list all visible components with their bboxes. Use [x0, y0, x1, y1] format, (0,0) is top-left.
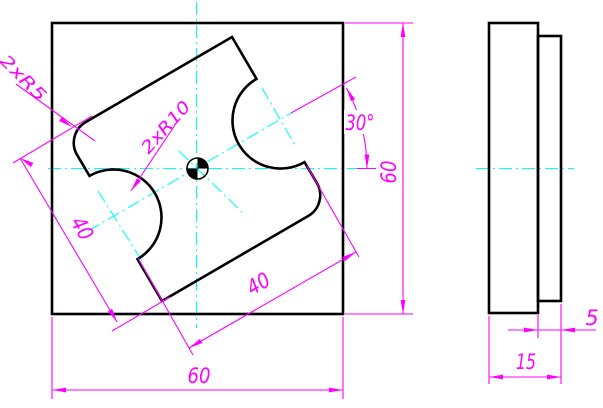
notch-radius-text: 2xR10: [137, 97, 195, 158]
extension-line: [138, 166, 359, 355]
dimension-line: [189, 252, 356, 348]
arrowhead-right: [547, 375, 561, 380]
total-thickness-text: 15: [516, 350, 536, 374]
arrowhead-arc-top: [346, 88, 355, 101]
dim-width-60: 60: [52, 317, 343, 399]
arrowhead-right: [329, 388, 343, 393]
front-view: 60 60 40 40: [0, 2, 413, 399]
slot-angle-text: 30°: [346, 111, 375, 135]
cad-canvas: 60 60 40 40: [0, 0, 603, 408]
dim-slot-length-40: 40: [138, 166, 359, 355]
center-mark-sw-quadrant: [187, 169, 198, 180]
arrowhead-nw: [20, 158, 33, 167]
arrowhead-left: [52, 388, 66, 393]
arrowhead-down: [401, 300, 406, 314]
arrowhead-in-right: [524, 328, 538, 333]
arrowhead-leader-r10: [131, 178, 141, 191]
slot-width-text: 40: [66, 213, 98, 245]
extension-line: [538, 304, 561, 384]
arrowhead-arc-bottom: [365, 155, 370, 169]
diagonal-centerline: [179, 151, 243, 213]
height-dim-text: 60: [377, 161, 401, 184]
arrowhead-left: [489, 375, 503, 380]
arrowhead-up: [401, 23, 406, 37]
arrowhead-leader-r5: [59, 117, 72, 127]
slot-length-text: 40: [243, 268, 275, 300]
arrowhead-se: [108, 309, 117, 322]
upper-notch-centerline: [262, 88, 296, 147]
boss-thickness-text: 5: [585, 306, 598, 330]
dim-angle-30: 30°: [291, 77, 376, 169]
dim-total-thickness-15: 15: [489, 316, 561, 384]
arrowhead-sw: [189, 339, 202, 348]
lower-notch-centerline: [98, 191, 142, 261]
center-mark-ne-quadrant: [198, 158, 209, 169]
center-mark: [187, 158, 208, 179]
cad-drawing-sheet: 60 60 40 40: [0, 0, 603, 408]
dimension-line: [20, 158, 117, 322]
leader-notch-radius: 2xR10: [131, 97, 195, 191]
width-dim-text: 60: [188, 364, 211, 388]
arrowhead-ne: [343, 252, 356, 261]
angle-reference-line: [291, 77, 356, 113]
corner-radius-text: 2xR5: [0, 51, 50, 106]
side-view: 5 15: [476, 23, 599, 384]
arrowhead-in-left: [561, 328, 575, 333]
